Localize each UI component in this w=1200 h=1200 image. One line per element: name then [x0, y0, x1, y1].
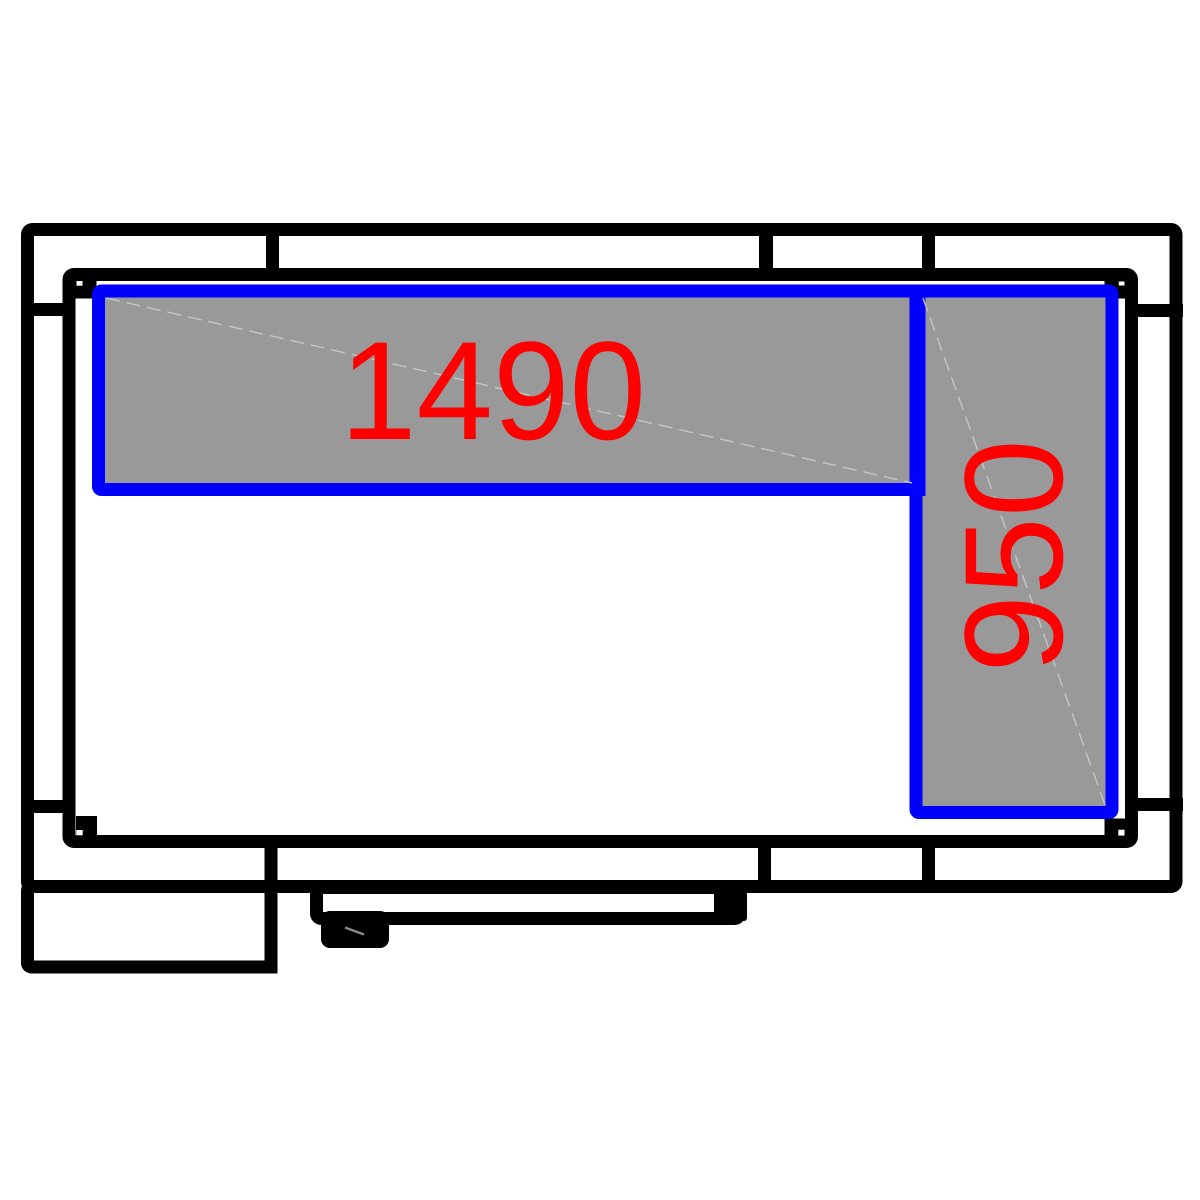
svg-text:1490: 1490: [340, 312, 646, 469]
svg-text:950: 950: [935, 439, 1092, 673]
